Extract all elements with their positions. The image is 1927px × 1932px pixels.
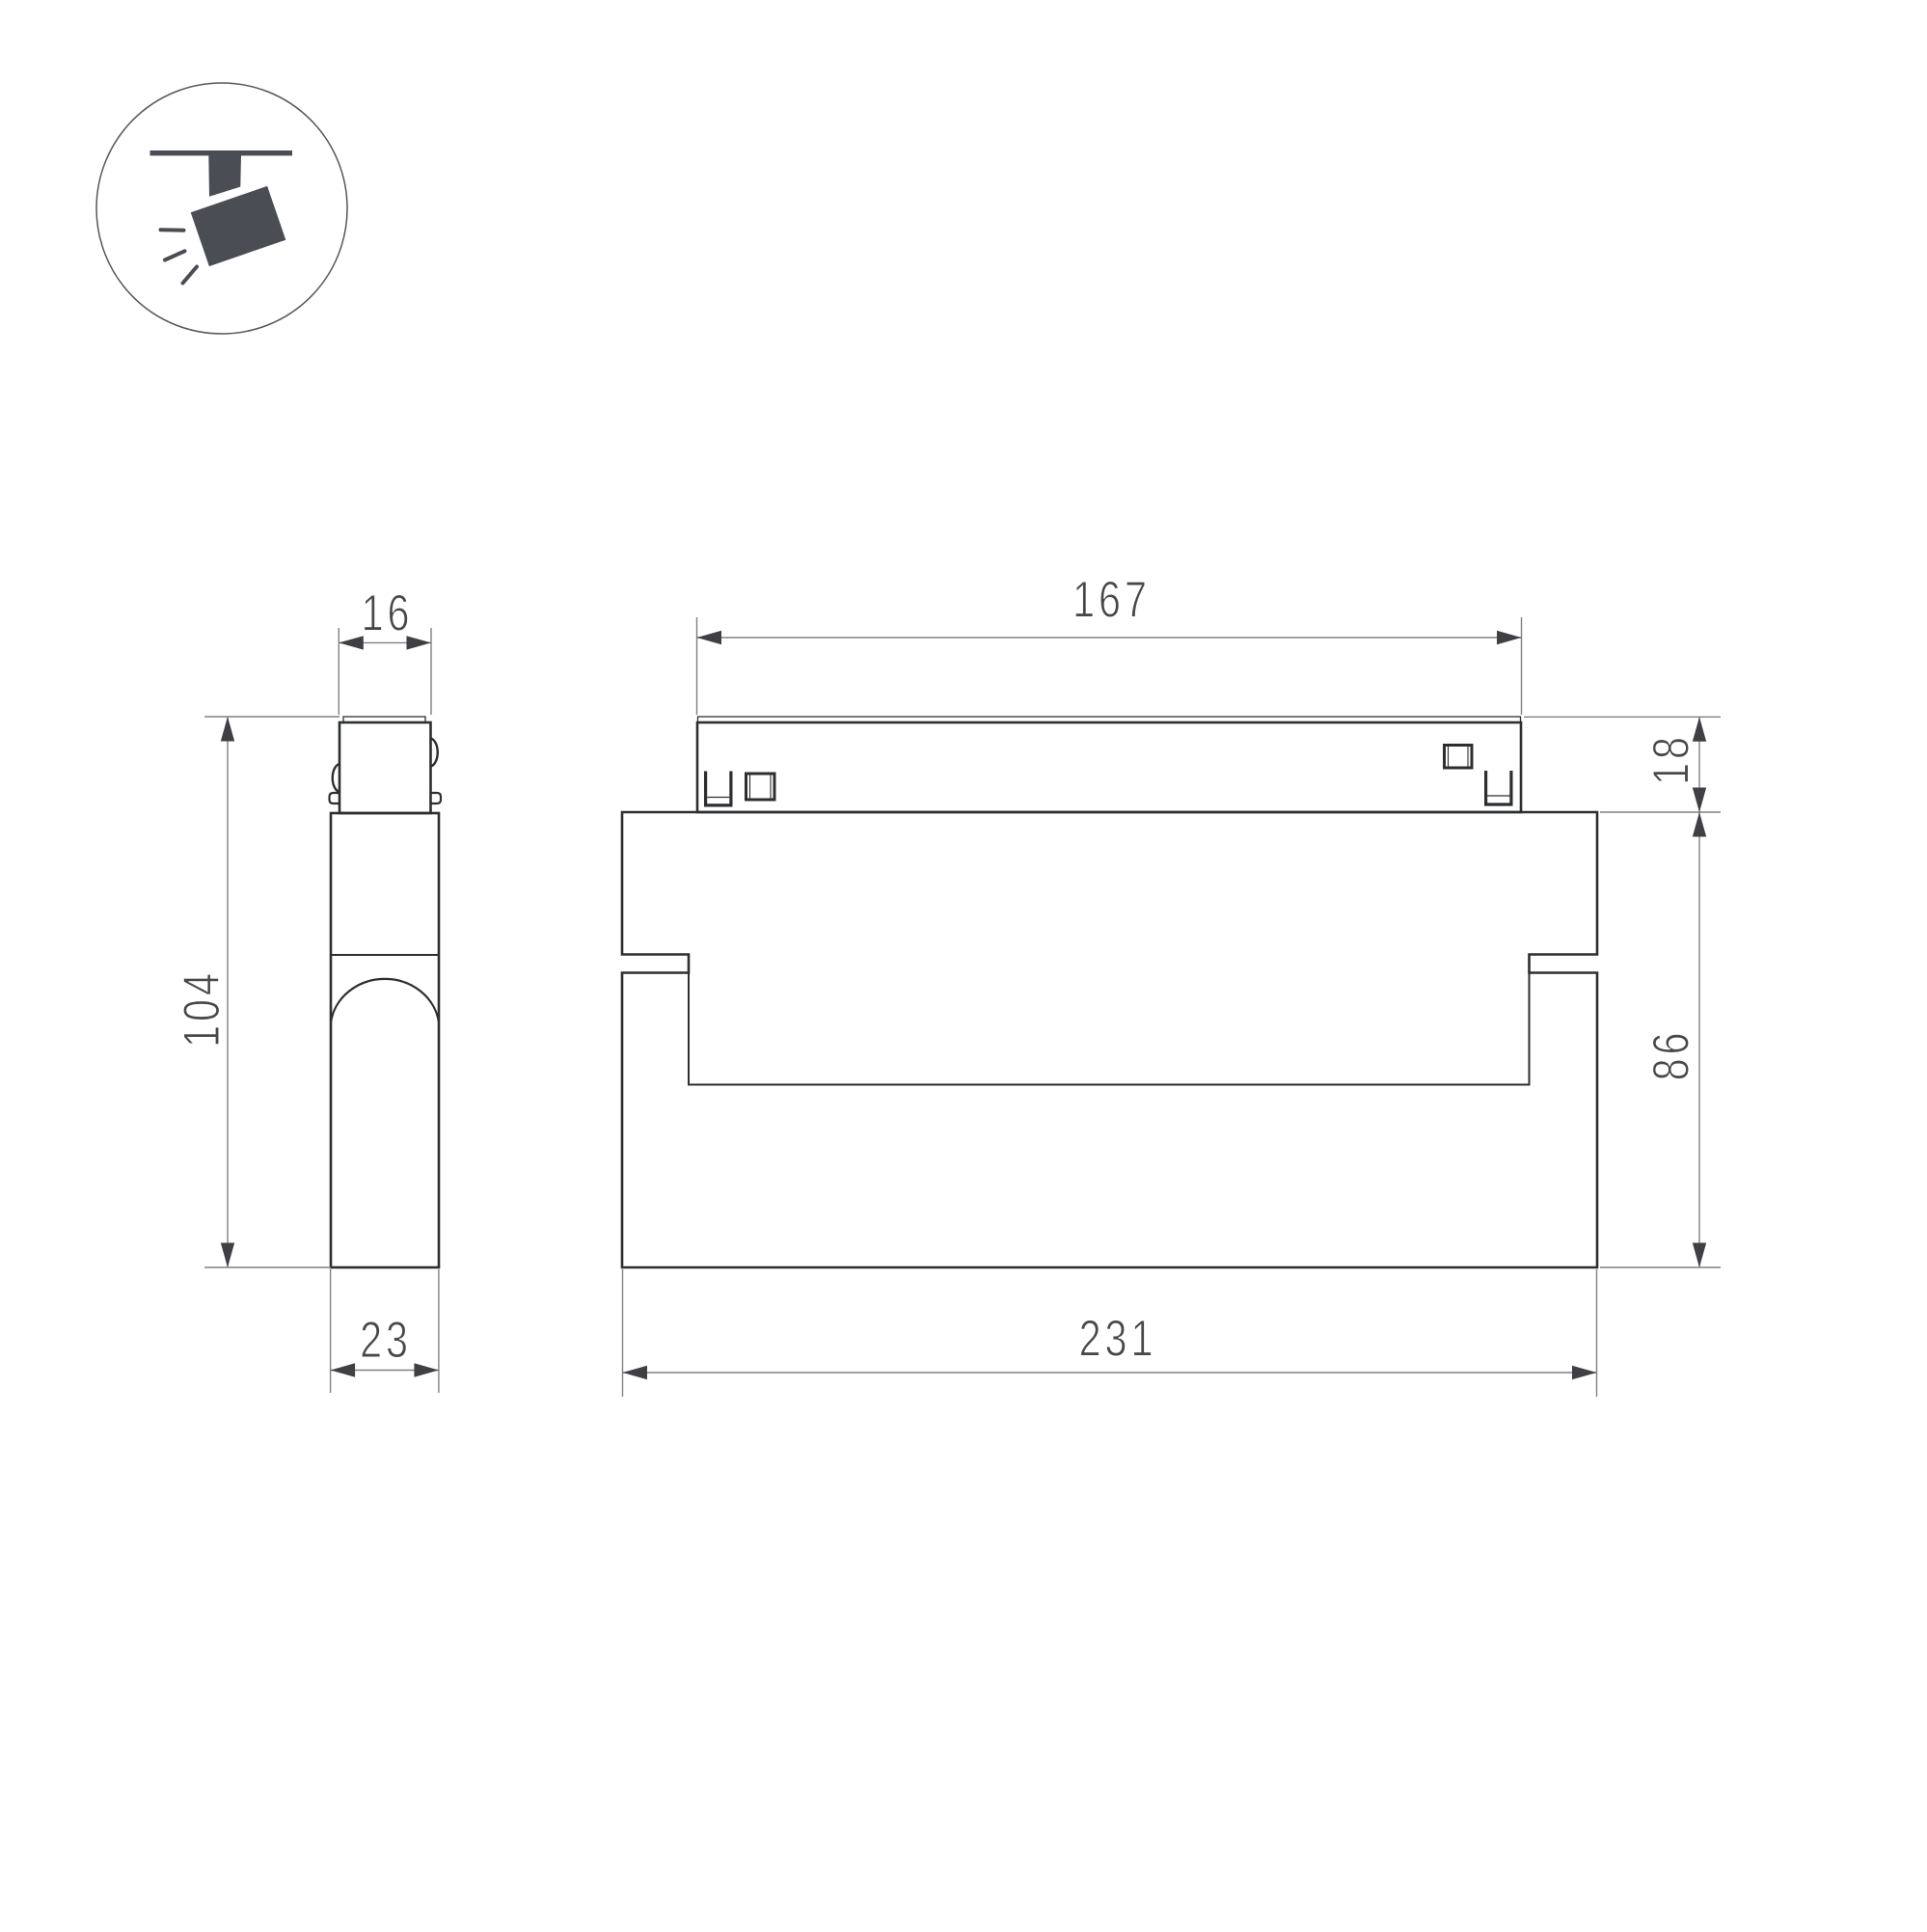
svg-text:167: 167: [1072, 572, 1151, 629]
svg-text:86: 86: [1643, 1029, 1700, 1081]
svg-text:104: 104: [174, 969, 231, 1048]
svg-text:23: 23: [360, 1312, 412, 1369]
svg-text:16: 16: [362, 585, 414, 642]
svg-text:18: 18: [1643, 733, 1700, 785]
svg-text:231: 231: [1079, 1311, 1157, 1368]
